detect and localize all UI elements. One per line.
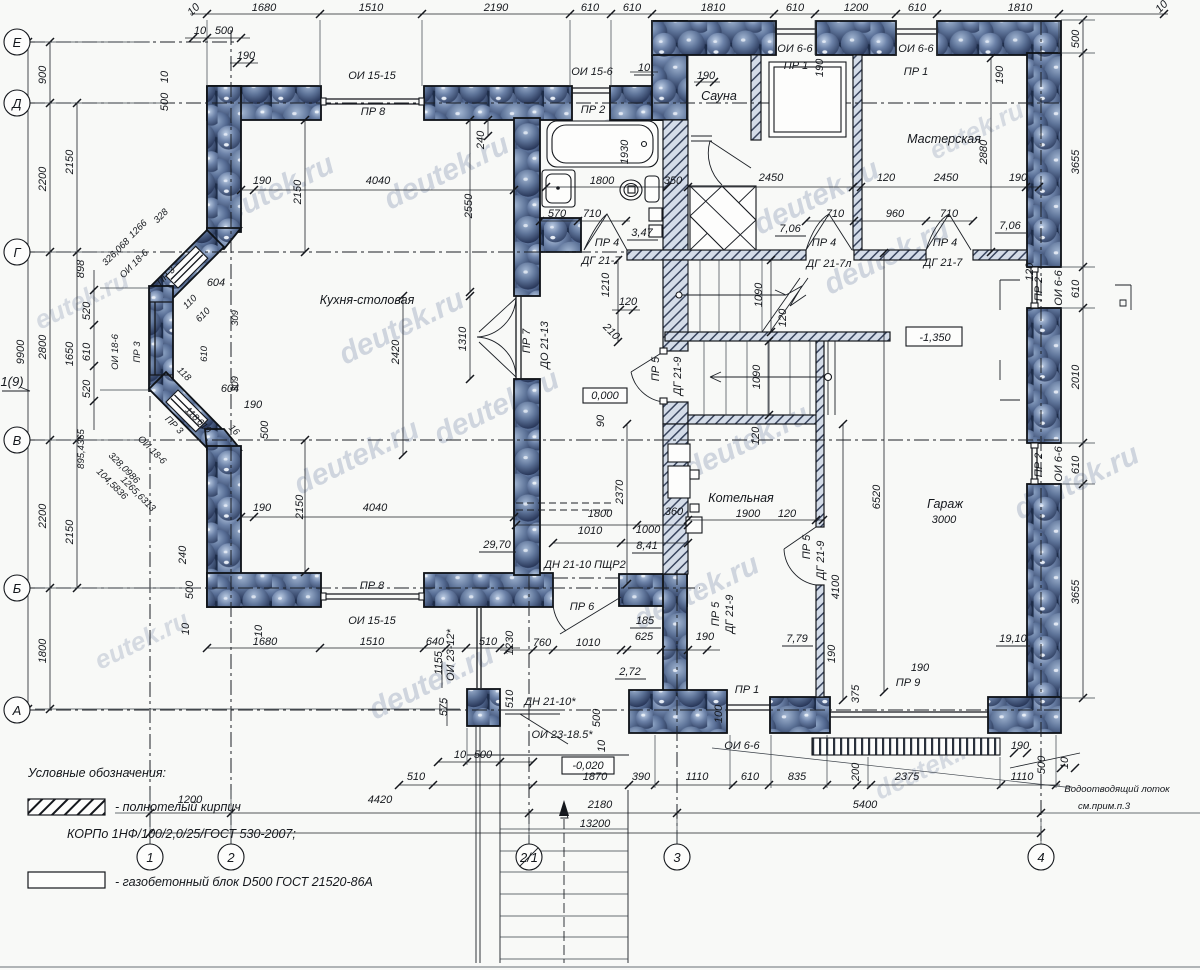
svg-text:6520: 6520	[871, 484, 883, 509]
svg-text:- газобетонный блок D500 ГОСТ: - газобетонный блок D500 ГОСТ 21520-86А	[115, 875, 373, 889]
svg-text:2420: 2420	[390, 339, 402, 365]
svg-text:610: 610	[1070, 279, 1082, 298]
svg-text:ПР 1: ПР 1	[784, 60, 808, 72]
svg-text:ДГ 21-9: ДГ 21-9	[815, 541, 827, 582]
svg-text:3000: 3000	[932, 514, 957, 526]
svg-text:2190: 2190	[483, 2, 509, 14]
svg-text:309: 309	[230, 309, 241, 326]
svg-text:1090: 1090	[753, 282, 765, 307]
svg-text:см.прим.п.3: см.прим.п.3	[1078, 801, 1131, 812]
svg-text:ОИ 15-6: ОИ 15-6	[571, 66, 613, 78]
svg-text:ДГ 21-7л: ДГ 21-7л	[804, 258, 851, 270]
svg-text:4040: 4040	[363, 502, 388, 514]
svg-text:500: 500	[259, 420, 271, 439]
svg-text:ОИ 6-6: ОИ 6-6	[898, 43, 934, 55]
svg-text:10: 10	[194, 25, 207, 37]
svg-text:4100: 4100	[830, 574, 842, 599]
svg-text:ОИ 23-12*: ОИ 23-12*	[445, 628, 457, 681]
svg-text:19,10: 19,10	[999, 633, 1027, 645]
svg-text:1110: 1110	[1011, 771, 1035, 783]
svg-text:190: 190	[1009, 172, 1028, 184]
svg-text:10: 10	[159, 70, 171, 83]
svg-text:1510: 1510	[359, 2, 384, 14]
svg-text:190: 190	[994, 65, 1006, 84]
svg-text:900: 900	[37, 65, 49, 84]
svg-text:2800: 2800	[37, 334, 49, 360]
svg-text:2: 2	[226, 850, 235, 865]
svg-text:185: 185	[636, 615, 655, 627]
svg-text:1680: 1680	[252, 2, 277, 14]
svg-text:375: 375	[850, 684, 862, 703]
svg-text:190: 190	[253, 175, 272, 187]
svg-text:Котельная: Котельная	[708, 491, 774, 505]
svg-text:570: 570	[548, 208, 567, 220]
svg-text:500: 500	[215, 25, 234, 37]
svg-text:0,000: 0,000	[591, 390, 619, 402]
svg-text:510: 510	[407, 771, 426, 783]
svg-text:604: 604	[221, 383, 239, 395]
svg-text:9900: 9900	[15, 339, 27, 364]
svg-text:1870: 1870	[583, 771, 608, 783]
svg-text:ПР 5: ПР 5	[650, 356, 662, 381]
svg-text:ОИ 6-6: ОИ 6-6	[1053, 269, 1065, 305]
svg-text:1090: 1090	[751, 364, 763, 389]
svg-text:КОРПо 1НФ/100/2,0/25/ГОСТ 530-: КОРПо 1НФ/100/2,0/25/ГОСТ 530-2007;	[67, 827, 296, 841]
svg-text:Б: Б	[13, 581, 22, 596]
svg-text:190: 190	[696, 631, 715, 643]
svg-text:1(9): 1(9)	[0, 374, 23, 389]
svg-text:10: 10	[1059, 756, 1071, 769]
svg-text:120: 120	[778, 508, 797, 520]
svg-text:2150: 2150	[294, 494, 306, 520]
svg-text:640: 640	[426, 636, 445, 648]
svg-text:3,47: 3,47	[631, 227, 653, 239]
svg-text:190: 190	[697, 70, 716, 82]
svg-text:120: 120	[877, 172, 896, 184]
svg-text:ДО 21-13: ДО 21-13	[539, 320, 551, 370]
svg-text:ПР 1: ПР 1	[735, 684, 759, 696]
svg-text:ПР 9: ПР 9	[896, 677, 920, 689]
svg-text:610: 610	[581, 2, 600, 14]
svg-text:ПР 5: ПР 5	[801, 534, 813, 559]
svg-text:895,4365: 895,4365	[76, 428, 87, 468]
svg-text:710: 710	[583, 208, 602, 220]
svg-text:1800: 1800	[590, 175, 615, 187]
svg-text:7,06: 7,06	[779, 223, 801, 235]
svg-text:4: 4	[1037, 850, 1044, 865]
svg-text:240: 240	[475, 130, 487, 150]
svg-text:510: 510	[479, 636, 498, 648]
svg-text:610: 610	[623, 2, 642, 14]
svg-text:ОИ 15-15: ОИ 15-15	[348, 70, 396, 82]
svg-text:ДГ 21-7: ДГ 21-7	[922, 257, 964, 269]
svg-text:10: 10	[454, 749, 467, 761]
svg-text:Гараж: Гараж	[927, 497, 964, 511]
svg-text:520: 520	[81, 301, 93, 320]
svg-text:2150: 2150	[64, 149, 76, 175]
svg-text:10: 10	[638, 62, 651, 74]
svg-text:100: 100	[713, 704, 725, 723]
svg-text:А: А	[12, 703, 22, 718]
svg-text:7,79: 7,79	[786, 633, 807, 645]
svg-text:610: 610	[1070, 455, 1082, 474]
svg-text:3655: 3655	[1070, 579, 1082, 604]
svg-text:190: 190	[253, 502, 272, 514]
svg-text:1155: 1155	[433, 650, 445, 675]
svg-text:500: 500	[1070, 29, 1082, 48]
svg-text:1810: 1810	[701, 2, 726, 14]
svg-text:8,41: 8,41	[636, 540, 657, 552]
svg-text:2880: 2880	[978, 139, 990, 165]
svg-text:610: 610	[741, 771, 760, 783]
svg-text:710: 710	[940, 208, 959, 220]
svg-text:190: 190	[814, 58, 826, 77]
svg-text:1010: 1010	[578, 525, 603, 537]
svg-text:190: 190	[1011, 740, 1030, 752]
svg-text:760: 760	[533, 637, 552, 649]
svg-text:5400: 5400	[853, 799, 878, 811]
svg-text:190: 190	[911, 662, 930, 674]
svg-text:1230: 1230	[504, 630, 516, 655]
svg-text:ОИ 6-6: ОИ 6-6	[724, 740, 760, 752]
svg-text:Мастерская: Мастерская	[907, 132, 981, 146]
svg-text:ДГ 21-9: ДГ 21-9	[724, 595, 736, 636]
svg-text:898: 898	[75, 259, 87, 278]
svg-text:Кухня-столовая: Кухня-столовая	[320, 293, 415, 307]
svg-text:ПР 8: ПР 8	[360, 580, 385, 592]
svg-text:Д: Д	[10, 96, 21, 111]
svg-text:120: 120	[750, 426, 762, 445]
svg-text:190: 190	[244, 399, 263, 411]
svg-text:2,72: 2,72	[618, 666, 640, 678]
svg-text:10: 10	[596, 739, 608, 752]
svg-text:4420: 4420	[368, 794, 393, 806]
svg-text:4040: 4040	[366, 175, 391, 187]
svg-text:3655: 3655	[1070, 149, 1082, 174]
svg-text:190: 190	[826, 644, 838, 663]
svg-text:360: 360	[665, 506, 684, 518]
svg-text:ПР 4: ПР 4	[595, 237, 619, 249]
svg-text:7,06: 7,06	[999, 220, 1021, 232]
svg-text:3: 3	[673, 850, 681, 865]
svg-text:1000: 1000	[636, 524, 661, 536]
svg-text:Е: Е	[13, 35, 22, 50]
svg-text:190: 190	[237, 50, 256, 62]
svg-text:Сауна: Сауна	[701, 89, 737, 103]
svg-text:Условные обозначения:: Условные обозначения:	[27, 766, 166, 780]
svg-text:2150: 2150	[292, 179, 304, 205]
svg-text:1930: 1930	[619, 139, 631, 164]
svg-text:1200: 1200	[844, 2, 869, 14]
svg-text:500: 500	[1036, 755, 1048, 774]
svg-text:ДН 21-10*: ДН 21-10*	[522, 696, 576, 708]
svg-text:2550: 2550	[463, 193, 475, 219]
svg-text:1810: 1810	[1008, 2, 1033, 14]
svg-text:- полнотелый кирпич: - полнотелый кирпич	[115, 800, 241, 814]
svg-text:610: 610	[81, 342, 93, 361]
svg-text:1010: 1010	[576, 637, 601, 649]
svg-text:ПР 6: ПР 6	[570, 601, 595, 613]
svg-text:710: 710	[826, 208, 845, 220]
svg-text:ОИ 6-6: ОИ 6-6	[777, 43, 813, 55]
svg-text:1110: 1110	[686, 771, 710, 783]
svg-text:ПР 5: ПР 5	[710, 601, 722, 626]
svg-text:2150: 2150	[64, 519, 76, 545]
svg-text:ПР 2: ПР 2	[1033, 277, 1045, 301]
svg-text:ОИ 18-6: ОИ 18-6	[110, 333, 121, 370]
svg-text:2450: 2450	[933, 172, 959, 184]
svg-text:ОИ 6-6: ОИ 6-6	[1053, 445, 1065, 481]
svg-text:500: 500	[184, 580, 196, 599]
svg-text:ДН 21-10 ПЩР2: ДН 21-10 ПЩР2	[542, 559, 626, 571]
svg-text:575: 575	[438, 697, 450, 716]
svg-text:ОИ 23-18.5*: ОИ 23-18.5*	[531, 729, 593, 741]
svg-text:604: 604	[207, 277, 225, 289]
svg-text:1210: 1210	[600, 272, 612, 297]
svg-text:ПР 7: ПР 7	[521, 328, 533, 353]
svg-text:1900: 1900	[736, 508, 761, 520]
svg-text:350: 350	[664, 175, 683, 187]
svg-text:500: 500	[591, 708, 603, 727]
svg-text:ПР 2: ПР 2	[581, 104, 605, 116]
svg-text:10: 10	[180, 622, 192, 635]
svg-text:120: 120	[777, 308, 789, 327]
svg-text:2370: 2370	[614, 479, 626, 505]
svg-text:2200: 2200	[37, 166, 49, 192]
svg-text:610: 610	[199, 345, 210, 362]
svg-text:ДГ 21-7: ДГ 21-7	[580, 255, 622, 267]
svg-text:1650: 1650	[64, 341, 76, 366]
svg-text:835: 835	[788, 771, 807, 783]
svg-text:1680: 1680	[253, 636, 278, 648]
svg-text:ПР 4: ПР 4	[933, 237, 957, 249]
svg-text:ДГ 21-9: ДГ 21-9	[672, 357, 684, 398]
svg-text:2200: 2200	[37, 503, 49, 529]
svg-text:2450: 2450	[758, 172, 784, 184]
svg-text:ПР 1: ПР 1	[904, 66, 928, 78]
svg-text:Г: Г	[13, 245, 21, 260]
svg-text:2010: 2010	[1070, 364, 1082, 390]
svg-text:500: 500	[159, 92, 171, 111]
svg-text:510: 510	[504, 689, 516, 708]
svg-text:Водоотводящий лоток: Водоотводящий лоток	[1064, 784, 1170, 795]
svg-text:13200: 13200	[580, 818, 611, 830]
svg-text:ПР 3: ПР 3	[132, 341, 143, 363]
svg-text:2375: 2375	[894, 771, 920, 783]
svg-text:2180: 2180	[587, 799, 613, 811]
svg-text:240: 240	[177, 545, 189, 565]
svg-text:1800: 1800	[37, 638, 49, 663]
svg-text:1310: 1310	[457, 326, 469, 351]
svg-text:В: В	[13, 433, 22, 448]
svg-text:500: 500	[474, 749, 493, 761]
svg-text:120: 120	[619, 296, 638, 308]
svg-text:610: 610	[908, 2, 927, 14]
svg-text:200: 200	[850, 762, 862, 782]
svg-text:ОИ 15-15: ОИ 15-15	[348, 615, 396, 627]
svg-text:ПР 2: ПР 2	[1033, 453, 1045, 477]
svg-text:ПР 8: ПР 8	[361, 106, 386, 118]
svg-text:29,70: 29,70	[482, 539, 511, 551]
svg-text:1510: 1510	[360, 636, 385, 648]
svg-text:960: 960	[886, 208, 905, 220]
svg-text:-1,350: -1,350	[919, 332, 951, 344]
svg-text:1800: 1800	[588, 508, 613, 520]
svg-text:ПР 4: ПР 4	[812, 237, 836, 249]
svg-text:520: 520	[81, 379, 93, 398]
svg-text:610: 610	[786, 2, 805, 14]
svg-text:390: 390	[632, 771, 651, 783]
svg-text:90: 90	[595, 414, 607, 427]
svg-text:625: 625	[635, 631, 654, 643]
svg-text:1: 1	[146, 850, 153, 865]
